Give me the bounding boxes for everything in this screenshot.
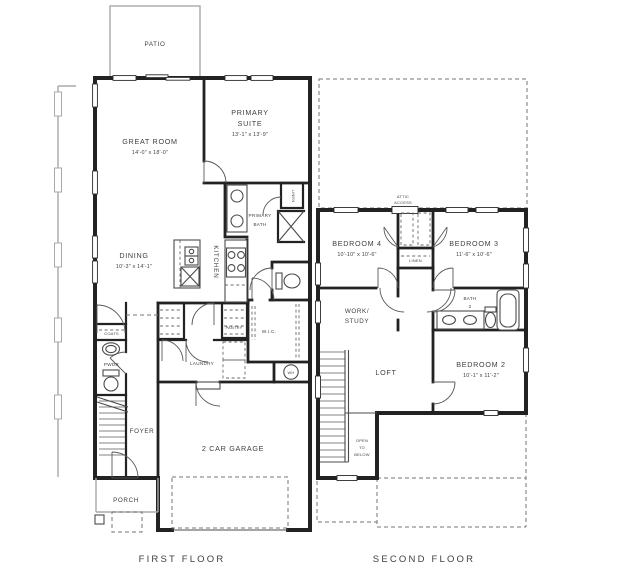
label-water-heater: WH <box>288 370 295 375</box>
label-dining-dims: 10'-3" x 14'-1" <box>116 264 152 270</box>
label-linen-2f: LINEN <box>409 258 422 263</box>
label-dining: DINING <box>119 251 148 260</box>
label-bedroom3-dims: 11'-6" x 10'-6" <box>456 252 492 258</box>
label-bedroom3: BEDROOM 3 <box>449 239 498 248</box>
label-primary-bath-1: PRIMARY <box>249 213 272 218</box>
label-open-below-2: TO <box>359 445 365 450</box>
label-primary-suite-1: PRIMARY <box>231 108 269 117</box>
second-floor-exterior-walls <box>318 210 526 478</box>
label-bath2-2: 2 <box>469 304 472 309</box>
label-kitchen: KITCHEN <box>212 245 219 278</box>
label-linen-1f: LINEN <box>291 190 296 202</box>
label-great-room: GREAT ROOM <box>122 137 177 146</box>
kitchen-fixtures <box>174 240 247 302</box>
first-floor-plan: PATIO GREAT ROOM 14'-0" x 18'-0" PRIMARY… <box>55 6 311 565</box>
label-open-below-1: OPEN <box>356 438 368 443</box>
label-foyer: FOYER <box>130 428 155 435</box>
label-patio: PATIO <box>145 41 166 48</box>
second-floor-labels: ATTIC ACCESS BEDROOM 4 10'-10" x 10'-6" … <box>332 194 505 565</box>
second-floor-closets <box>401 213 430 256</box>
closet-shelves <box>160 310 245 334</box>
first-floor-title: FIRST FLOOR <box>139 554 226 565</box>
label-laundry: LAUNDRY <box>190 361 214 366</box>
label-work-study-2: STUDY <box>345 318 370 325</box>
second-floor-title: SECOND FLOOR <box>373 554 475 565</box>
label-wic: W.I.C. <box>262 329 276 334</box>
porch-elements <box>95 478 158 532</box>
label-primary-bath-2: BATH <box>253 222 266 227</box>
label-porch: PORCH <box>113 497 139 504</box>
floorplan-canvas: PATIO GREAT ROOM 14'-0" x 18'-0" PRIMARY… <box>0 0 617 582</box>
label-bedroom4: BEDROOM 4 <box>332 239 381 248</box>
utility-fixtures <box>223 304 299 379</box>
garage-elements <box>172 477 288 528</box>
label-attic-2: ACCESS <box>394 200 412 205</box>
label-bedroom2: BEDROOM 2 <box>456 360 505 369</box>
lot-line <box>55 86 77 477</box>
label-primary-suite-2: SUITE <box>238 119 263 128</box>
label-bath2-1: BATH <box>463 296 476 301</box>
second-floor-stairs <box>320 350 349 462</box>
first-floor-stairs <box>97 397 128 455</box>
label-pantry: PANTRY <box>225 325 242 330</box>
floorplan-svg: PATIO GREAT ROOM 14'-0" x 18'-0" PRIMARY… <box>0 0 617 582</box>
second-floor-plan: ATTIC ACCESS BEDROOM 4 10'-10" x 10'-6" … <box>316 79 529 565</box>
label-great-room-dims: 14'-0" x 18'-0" <box>132 150 168 156</box>
label-primary-suite-dims: 13'-1" x 13'-9" <box>232 132 268 138</box>
label-loft: LOFT <box>375 368 396 377</box>
label-garage: 2 CAR GARAGE <box>202 444 264 453</box>
label-attic-1: ATTIC <box>397 194 409 199</box>
label-open-below-3: BELOW <box>354 452 369 457</box>
first-floor-doors <box>97 161 281 478</box>
label-bedroom2-dims: 10'-1" x 11'-2" <box>463 373 499 379</box>
label-work-study-1: WORK/ <box>345 308 369 315</box>
label-bedroom4-dims: 10'-10" x 10'-6" <box>337 252 376 258</box>
label-coats: COATS <box>104 331 119 336</box>
label-powder: PWDR <box>104 362 120 367</box>
